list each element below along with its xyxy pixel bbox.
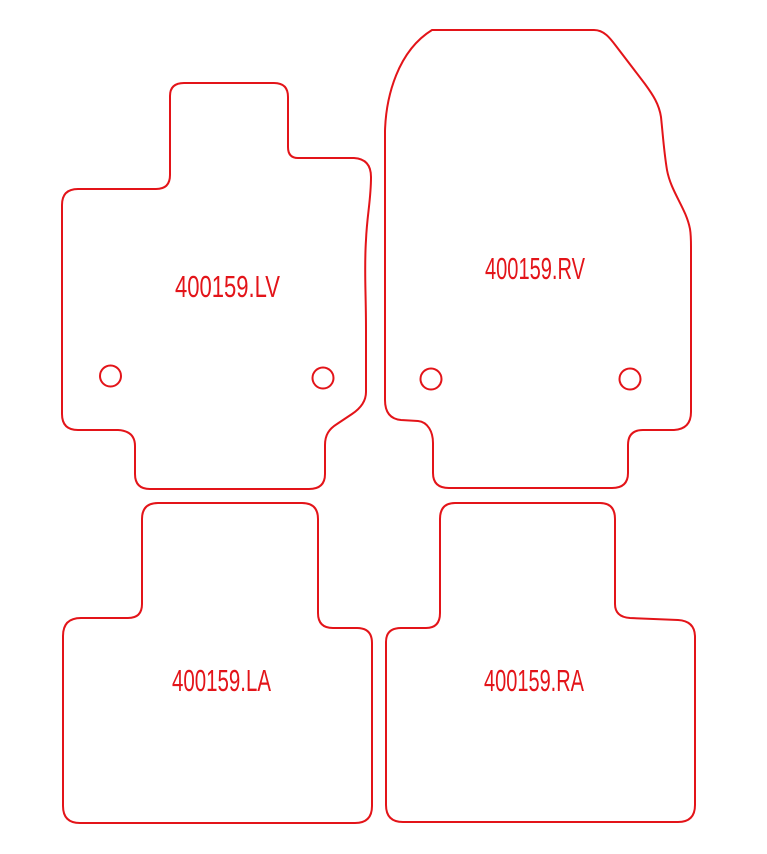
mat-label-rear-left: 400159.LA xyxy=(172,663,271,698)
mat-labels: 400159.LV 400159.RV 400159.LA 400159.RA xyxy=(172,251,585,698)
fixing-hole-icon xyxy=(620,369,641,390)
mat-pattern-page: 400159.LV 400159.RV 400159.LA 400159.RA xyxy=(0,0,767,854)
mat-label-front-right: 400159.RV xyxy=(485,251,585,286)
mat-label-rear-right: 400159.RA xyxy=(484,663,584,698)
mat-label-front-left: 400159.LV xyxy=(175,269,280,304)
mat-outlines xyxy=(62,30,695,823)
fixing-hole-icon xyxy=(313,368,334,389)
fixing-hole-icon xyxy=(421,369,442,390)
mat-pattern-drawing: 400159.LV 400159.RV 400159.LA 400159.RA xyxy=(0,0,767,854)
fixing-hole-icon xyxy=(100,366,121,387)
